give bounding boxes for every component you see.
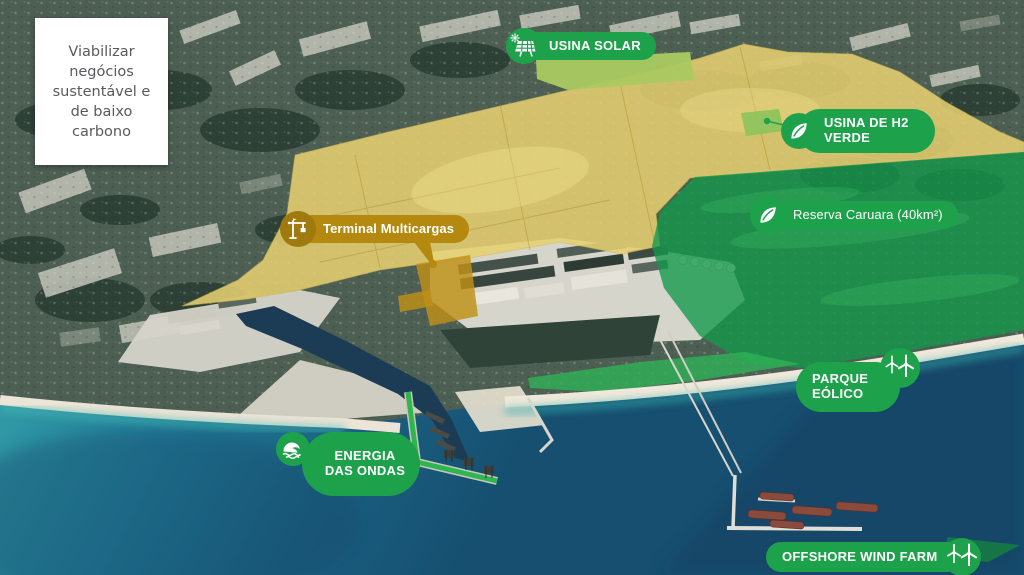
label-energia-das-ondas: ENERGIA DAS ONDAS [276,432,420,496]
label-text: Terminal Multicargas [323,222,454,237]
solar-panel-icon [506,28,542,64]
pill-usina-h2-verde: USINA DE H2 VERDE [798,109,935,153]
pill-usina-solar: USINA SOLAR [523,32,656,60]
label-text: ENERGIA DAS ONDAS [322,449,408,478]
label-text: USINA SOLAR [549,39,641,54]
leaf-icon [781,113,817,149]
label-terminal-multicargas: Terminal Multicargas [280,211,469,247]
label-reserva-caruara: Reserva Caruara (40km²) [750,197,958,233]
pill-offshore-wind-farm: OFFSHORE WIND FARM [766,542,963,572]
label-text: PARQUE EÓLICO [812,372,874,401]
label-text: USINA DE H2 VERDE [824,116,920,145]
label-text: OFFSHORE WIND FARM [782,550,937,565]
pill-reserva-caruara: Reserva Caruara (40km²) [767,201,958,229]
info-box-text: Viabilizar negócios sustentável e de bai… [44,42,159,142]
pill-terminal-multicargas: Terminal Multicargas [297,215,469,243]
label-parque-eolico: PARQUE EÓLICO [796,362,920,412]
crane-icon [280,211,316,247]
leaf-icon [750,197,786,233]
info-box: Viabilizar negócios sustentável e de bai… [35,18,168,165]
label-text: Reserva Caruara (40km²) [793,208,943,223]
wind-turbine-icon [943,538,981,575]
pill-energia-das-ondas: ENERGIA DAS ONDAS [302,432,420,496]
wind-turbine-icon [880,348,920,388]
label-usina-solar: USINA SOLAR [506,28,656,64]
label-usina-h2-verde: USINA DE H2 VERDE [781,109,935,153]
label-offshore-wind-farm: OFFSHORE WIND FARM [766,538,981,575]
wave-icon [276,432,310,466]
port-aerial-map: Viabilizar negócios sustentável e de bai… [0,0,1024,575]
